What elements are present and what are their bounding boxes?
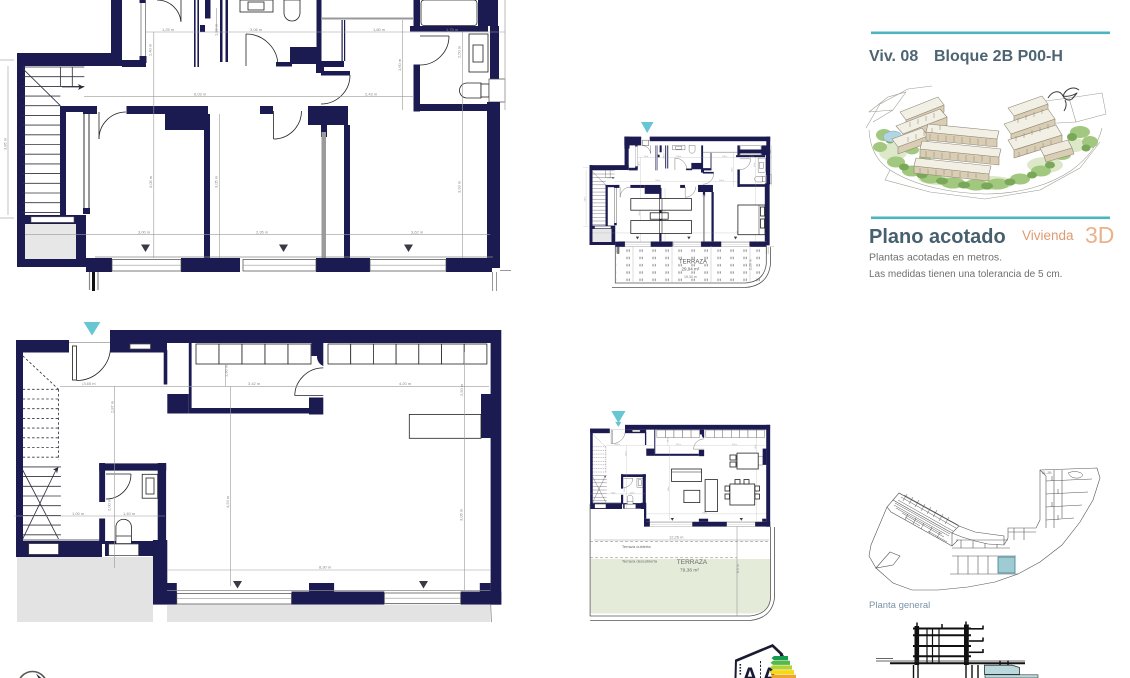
- svg-text:79,36 m²: 79,36 m²: [680, 568, 699, 574]
- svg-text:1,03 m: 1,03 m: [214, 23, 219, 36]
- svg-text:29,04 m²: 29,04 m²: [682, 267, 700, 272]
- svg-text:2,40 m: 2,40 m: [148, 43, 153, 56]
- svg-text:4,53 m: 4,53 m: [225, 495, 230, 508]
- svg-text:3,93 m: 3,93 m: [457, 180, 462, 193]
- svg-text:1,25 m: 1,25 m: [162, 27, 175, 32]
- svg-text:1,40 m: 1,40 m: [123, 511, 136, 516]
- svg-text:2,43 m: 2,43 m: [365, 92, 378, 97]
- svg-text:1,75 m: 1,75 m: [446, 27, 459, 32]
- svg-text:TERRAZA: TERRAZA: [679, 260, 707, 266]
- svg-text:TERRAZA: TERRAZA: [677, 559, 708, 566]
- svg-text:12,26 m: 12,26 m: [669, 535, 684, 540]
- svg-text:3,42 m: 3,42 m: [248, 381, 261, 386]
- svg-text:Plantas acotadas en metros.: Plantas acotadas en metros.: [869, 252, 1002, 264]
- svg-text:Vivienda: Vivienda: [1022, 228, 1074, 243]
- svg-text:3,05 m: 3,05 m: [214, 175, 219, 188]
- svg-text:3,00 m: 3,00 m: [138, 230, 151, 235]
- svg-text:3,05 m: 3,05 m: [148, 175, 153, 188]
- svg-text:3,62 m: 3,62 m: [411, 230, 424, 235]
- svg-text:8,30 m: 8,30 m: [319, 565, 332, 570]
- svg-text:¡3,65 m: ¡3,65 m: [82, 381, 96, 386]
- svg-text:1,60 m: 1,60 m: [397, 58, 402, 71]
- svg-text:1,90 m: 1,90 m: [224, 364, 229, 377]
- svg-text:3,85 m: 3,85 m: [3, 137, 8, 150]
- svg-text:Terraza descubierta: Terraza descubierta: [622, 558, 658, 563]
- svg-text:2,50 m: 2,50 m: [459, 383, 464, 396]
- svg-text:Plano acotado: Plano acotado: [869, 226, 1006, 248]
- svg-text:1,00 m: 1,00 m: [72, 511, 85, 516]
- svg-text:A: A: [742, 663, 758, 678]
- svg-text:3,06 m: 3,06 m: [250, 27, 263, 32]
- svg-text:1,80 m: 1,80 m: [373, 27, 386, 32]
- svg-text:Terraza cubierta: Terraza cubierta: [622, 544, 651, 549]
- svg-text:2,00 m: 2,00 m: [107, 498, 112, 511]
- svg-text:Viv. 08: Viv. 08: [869, 48, 918, 65]
- svg-text:2,50 m: 2,50 m: [457, 45, 462, 58]
- svg-text:2,95 m: 2,95 m: [256, 230, 269, 235]
- svg-text:3,06 m: 3,06 m: [459, 508, 464, 521]
- svg-text:Las medidas tienen una toleran: Las medidas tienen una tolerancia de 5 c…: [869, 269, 1062, 280]
- svg-text:2,36 m: 2,36 m: [749, 259, 753, 270]
- svg-text:4,20 m: 4,20 m: [399, 381, 412, 386]
- svg-text:8,5 m: 8,5 m: [736, 564, 740, 573]
- svg-text:6,03 m: 6,03 m: [194, 92, 207, 97]
- svg-text:Planta general: Planta general: [869, 600, 930, 611]
- svg-text:19,34 m: 19,34 m: [684, 275, 697, 279]
- svg-text:2,87 m: 2,87 m: [110, 400, 115, 413]
- svg-text:Bloque 2B P00-H: Bloque 2B P00-H: [934, 48, 1063, 65]
- svg-text:BL.2B: BL.2B: [1042, 471, 1052, 475]
- svg-text:3D: 3D: [1085, 222, 1114, 248]
